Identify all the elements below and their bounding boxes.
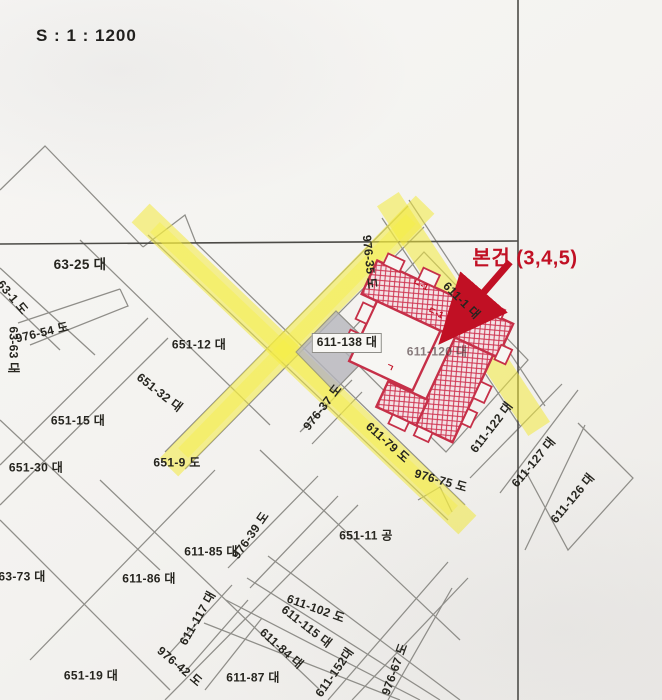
parcel-label-651-15: 651-15 대 xyxy=(51,412,105,429)
parcel-label-611-138: 611-138 대 xyxy=(312,333,382,353)
parcel-label-651-11: 651-11 공 xyxy=(339,527,392,544)
parcel-label-63-25: 63-25 대 xyxy=(54,253,107,273)
subject-annotation-label: 본건 (3,4,5) xyxy=(472,242,577,271)
parcel-label-651-9: 651-9 도 xyxy=(153,454,200,471)
parcel-label-651-12: 651-12 대 xyxy=(172,336,226,353)
cadastral-map-scan: S : 1 : 1200 본건 (3,4,5) 63-25 대 63-1 도 9… xyxy=(0,0,662,700)
parcel-label-651-30: 651-30 대 xyxy=(9,459,63,476)
parcel-label-611-86: 611-86 대 xyxy=(122,570,175,587)
parcel-label-63-63: 63-63 대 xyxy=(6,326,23,373)
parcel-label-651-19: 651-19 대 xyxy=(64,667,118,684)
parcel-label-611-120: 611-120 대 xyxy=(407,343,467,360)
parcel-label-63-73: 63-73 대 xyxy=(0,568,46,585)
parcel-label-611-87: 611-87 대 xyxy=(226,669,279,686)
map-scale-label: S : 1 : 1200 xyxy=(36,26,137,46)
